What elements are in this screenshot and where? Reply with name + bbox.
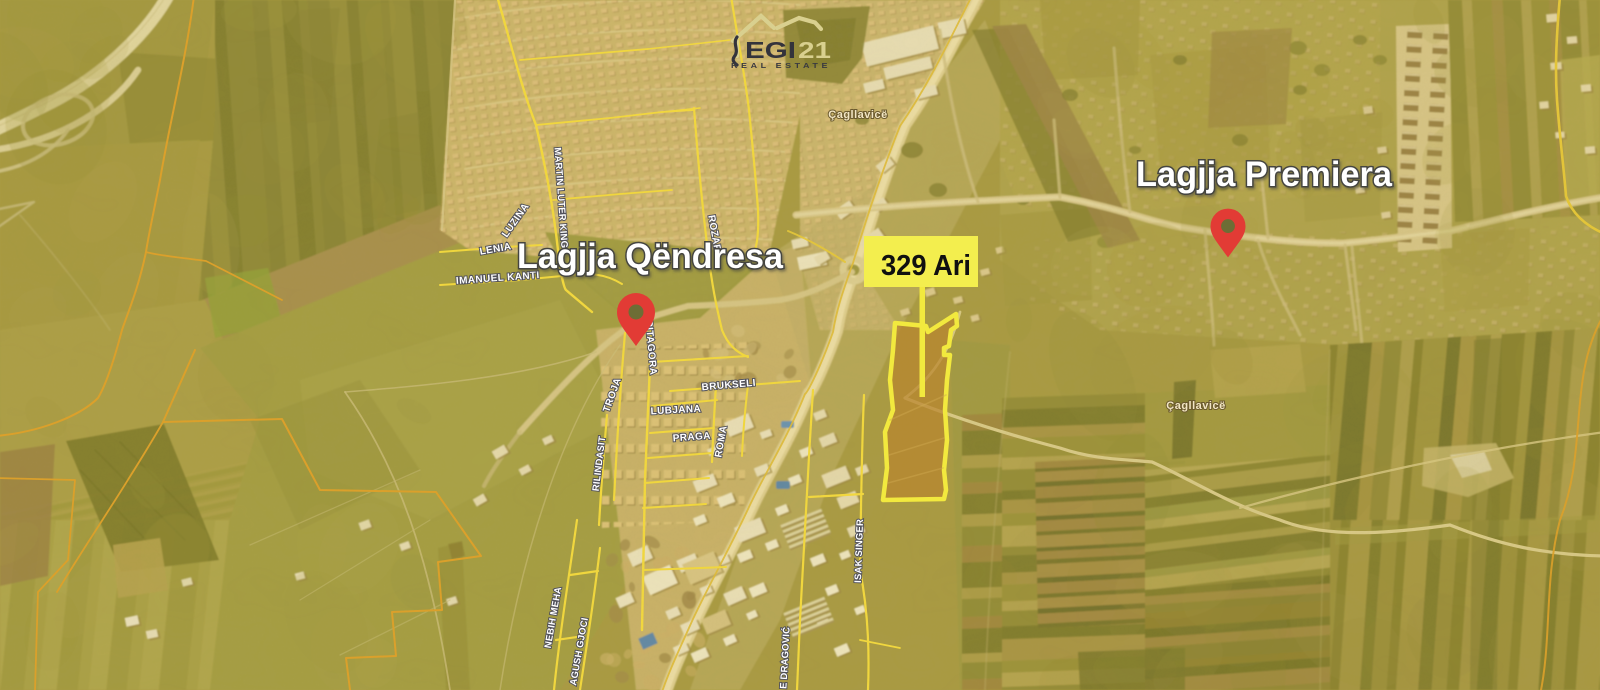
- svg-text:Çagllavicë: Çagllavicë: [828, 109, 887, 121]
- svg-text:ISAK SINGER: ISAK SINGER: [853, 519, 866, 583]
- svg-text:Lagjja Premiera: Lagjja Premiera: [1136, 155, 1393, 194]
- svg-text:Lagjja Qëndresa: Lagjja Qëndresa: [517, 237, 784, 276]
- svg-text:21: 21: [798, 37, 831, 63]
- svg-text:Çagllavicë: Çagllavicë: [1166, 400, 1225, 412]
- svg-text:329 Ari: 329 Ari: [881, 250, 971, 282]
- svg-text:REAL ESTATE: REAL ESTATE: [731, 61, 831, 70]
- svg-text:EGI: EGI: [745, 37, 796, 63]
